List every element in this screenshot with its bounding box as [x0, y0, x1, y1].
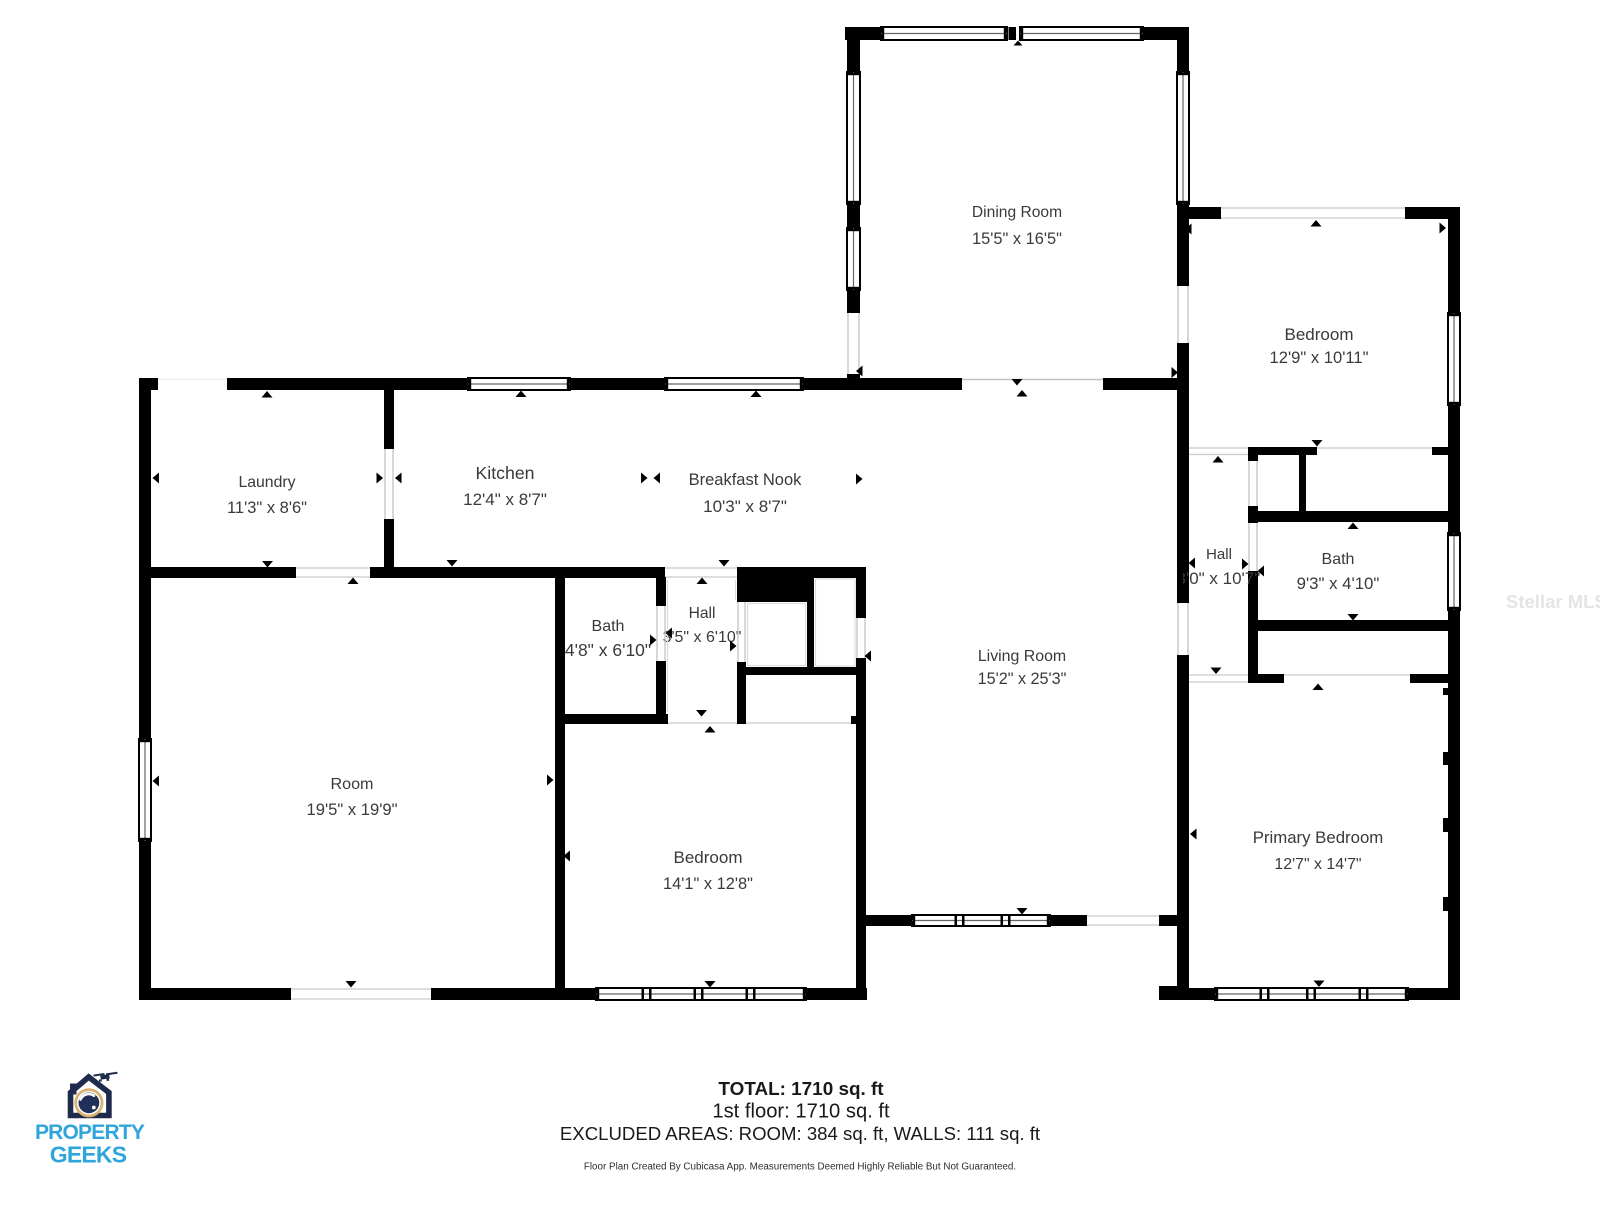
svg-text:Floor Plan Created By Cubicasa: Floor Plan Created By Cubicasa App. Meas… — [584, 1162, 1016, 1173]
svg-text:3'0" x 10'7": 3'0" x 10'7" — [1177, 569, 1261, 588]
svg-text:3'5" x 6'10": 3'5" x 6'10" — [663, 629, 742, 646]
svg-text:GEEKS: GEEKS — [50, 1142, 127, 1168]
svg-text:11'3" x 8'6": 11'3" x 8'6" — [227, 499, 307, 517]
svg-text:10'3" x 8'7": 10'3" x 8'7" — [703, 497, 787, 516]
svg-text:Bath: Bath — [1322, 551, 1355, 568]
svg-text:Room: Room — [331, 775, 374, 793]
svg-text:12'4" x 8'7": 12'4" x 8'7" — [463, 490, 547, 509]
svg-text:4'8" x 6'10": 4'8" x 6'10" — [565, 640, 651, 660]
svg-text:15'2" x 25'3": 15'2" x 25'3" — [978, 670, 1067, 688]
svg-text:EXCLUDED AREAS: ROOM: 384 sq.: EXCLUDED AREAS: ROOM: 384 sq. ft, WALLS:… — [560, 1123, 1041, 1144]
svg-text:1st floor: 1710 sq. ft: 1st floor: 1710 sq. ft — [712, 1101, 890, 1123]
svg-text:TOTAL: 1710 sq. ft: TOTAL: 1710 sq. ft — [718, 1079, 884, 1100]
svg-text:Hall: Hall — [1206, 546, 1232, 563]
svg-text:12'7" x 14'7": 12'7" x 14'7" — [1274, 856, 1361, 873]
svg-text:Breakfast Nook: Breakfast Nook — [689, 471, 803, 489]
svg-text:Living Room: Living Room — [978, 648, 1066, 665]
svg-text:12'9" x 10'11": 12'9" x 10'11" — [1269, 348, 1368, 367]
svg-text:Bedroom: Bedroom — [1285, 325, 1354, 344]
svg-text:Dining Room: Dining Room — [972, 204, 1062, 221]
svg-text:Bedroom: Bedroom — [674, 848, 743, 867]
svg-text:9'3" x 4'10": 9'3" x 4'10" — [1297, 574, 1380, 593]
svg-text:Kitchen: Kitchen — [476, 463, 535, 483]
svg-text:Bath: Bath — [592, 618, 625, 635]
svg-text:Primary Bedroom: Primary Bedroom — [1253, 828, 1384, 847]
svg-text:Hall: Hall — [689, 605, 716, 622]
svg-text:Stellar MLS: Stellar MLS — [1506, 591, 1600, 612]
svg-text:19'5" x 19'9": 19'5" x 19'9" — [306, 800, 397, 819]
svg-text:Laundry: Laundry — [238, 474, 295, 491]
svg-text:15'5" x 16'5": 15'5" x 16'5" — [972, 230, 1062, 248]
svg-text:14'1" x 12'8": 14'1" x 12'8" — [663, 875, 753, 893]
